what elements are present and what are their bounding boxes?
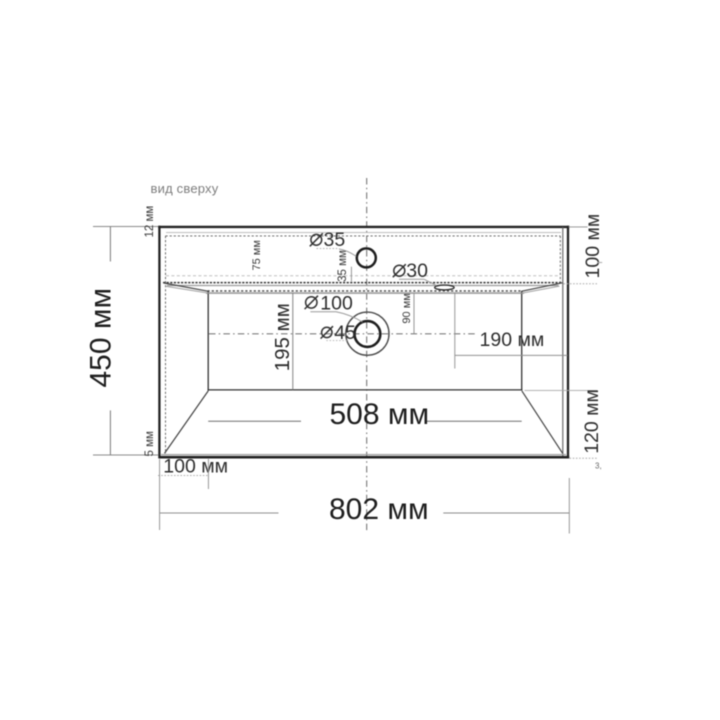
svg-text:508 мм: 508 мм — [330, 398, 430, 431]
svg-text:35: 35 — [324, 229, 346, 251]
svg-text:12 мм: 12 мм — [144, 206, 156, 238]
svg-text:100: 100 — [320, 292, 353, 314]
svg-text:100 мм: 100 мм — [163, 455, 228, 477]
svg-text:30: 30 — [406, 260, 428, 282]
svg-text:195 мм: 195 мм — [271, 303, 294, 371]
svg-text:35 мм: 35 мм — [337, 250, 349, 282]
svg-text:75 мм: 75 мм — [251, 240, 263, 270]
svg-text:450 мм: 450 мм — [85, 288, 118, 388]
svg-text:5 мм: 5 мм — [144, 431, 156, 456]
svg-text:120 мм: 120 мм — [581, 389, 603, 454]
svg-text:3,: 3, — [595, 462, 602, 471]
svg-text:190 мм: 190 мм — [480, 329, 545, 351]
svg-text:90 мм: 90 мм — [401, 293, 413, 323]
svg-text:100 мм: 100 мм — [582, 214, 604, 279]
svg-text:вид сверху: вид сверху — [151, 181, 219, 196]
svg-text:802 мм: 802 мм — [329, 493, 429, 526]
